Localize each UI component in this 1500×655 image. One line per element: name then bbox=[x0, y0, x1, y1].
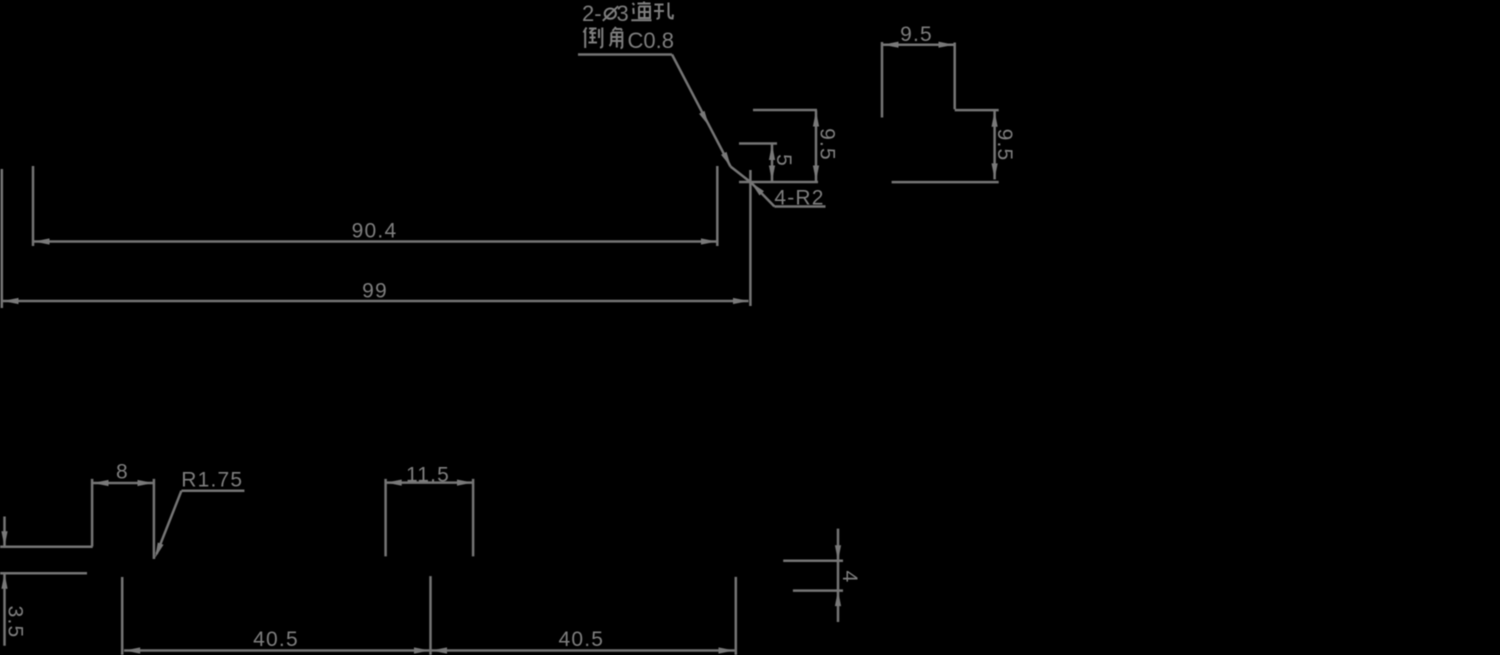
svg-text:4: 4 bbox=[838, 570, 861, 583]
svg-text:R1.75: R1.75 bbox=[181, 469, 243, 492]
svg-text:11.5: 11.5 bbox=[406, 464, 450, 487]
svg-text:40.5: 40.5 bbox=[558, 628, 604, 651]
svg-text:C0.8: C0.8 bbox=[628, 28, 674, 53]
svg-text:9.5: 9.5 bbox=[993, 129, 1016, 162]
svg-text:99: 99 bbox=[362, 280, 388, 303]
svg-text:90.4: 90.4 bbox=[352, 220, 398, 243]
svg-text:2-: 2- bbox=[582, 1, 602, 26]
svg-text:4-R2: 4-R2 bbox=[774, 187, 824, 210]
svg-text:3: 3 bbox=[617, 1, 629, 26]
svg-text:40.5: 40.5 bbox=[253, 628, 299, 651]
svg-text:9.5: 9.5 bbox=[900, 23, 933, 46]
svg-text:3.5: 3.5 bbox=[3, 606, 26, 639]
svg-text:8: 8 bbox=[116, 461, 129, 484]
svg-text:5: 5 bbox=[772, 154, 795, 167]
svg-text:9.5: 9.5 bbox=[815, 128, 838, 161]
